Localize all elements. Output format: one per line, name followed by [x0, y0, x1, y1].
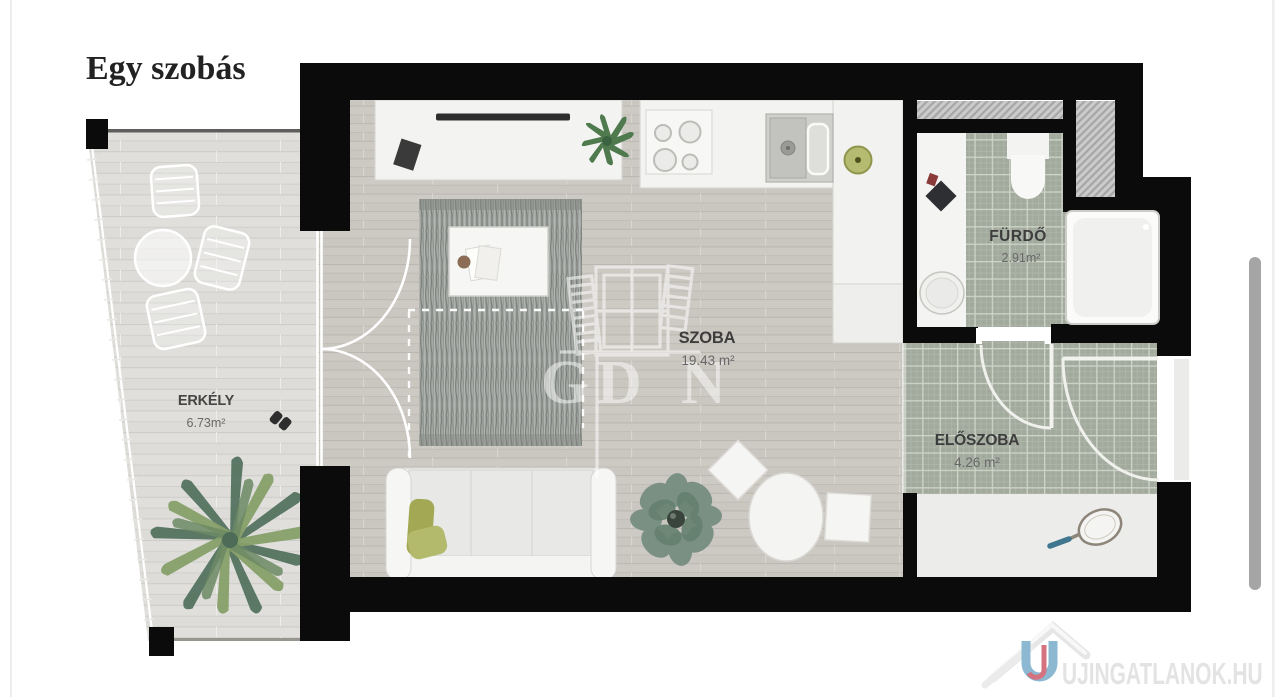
svg-text:4.26 m²: 4.26 m²	[954, 455, 1000, 470]
svg-text:2.91m²: 2.91m²	[1002, 251, 1041, 265]
svg-text:G: G	[541, 349, 589, 417]
svg-text:ERKÉLY: ERKÉLY	[178, 392, 235, 409]
svg-text:19.43 m²: 19.43 m²	[681, 353, 735, 368]
svg-text:FÜRDŐ: FÜRDŐ	[989, 227, 1047, 245]
svg-text:ELŐSZOBA: ELŐSZOBA	[935, 431, 1020, 449]
svg-text:UJINGATLANOK.HU: UJINGATLANOK.HU	[1062, 656, 1263, 691]
svg-text:D: D	[597, 349, 642, 417]
svg-text:6.73m²: 6.73m²	[187, 416, 226, 430]
svg-text:SZOBA: SZOBA	[679, 329, 736, 347]
svg-text:Egy szobás: Egy szobás	[86, 50, 246, 87]
